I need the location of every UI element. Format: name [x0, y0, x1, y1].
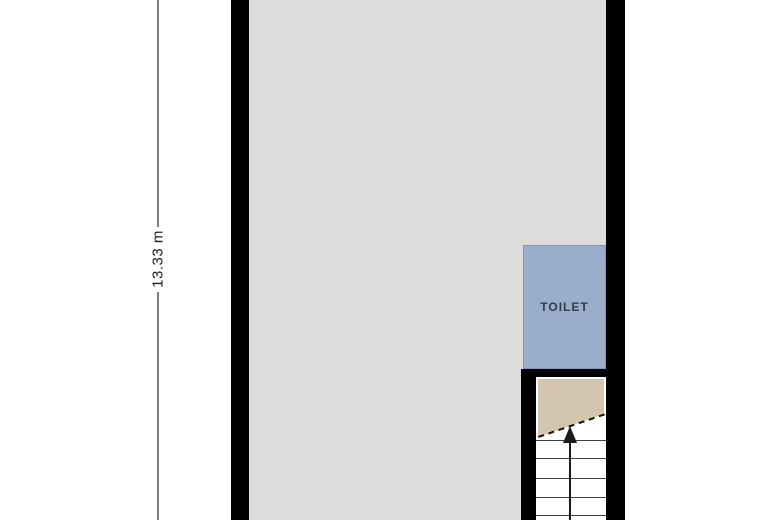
wall-stairs-left [521, 369, 536, 520]
dimension-line-upper [157, 0, 159, 227]
toilet-room: TOILET [523, 245, 606, 369]
wall-right [606, 0, 625, 520]
stair-tread-line [536, 497, 606, 498]
floorplan-canvas: 13.33 m TOILET [0, 0, 780, 520]
dimension-line-lower [157, 292, 159, 520]
stair-direction-line [569, 442, 571, 520]
staircase [536, 377, 606, 520]
stair-tread-line [536, 478, 606, 479]
dimension-label: 13.33 m [150, 230, 167, 288]
wall-left [231, 0, 249, 520]
stair-tread-line [536, 515, 606, 516]
stair-tread-line [536, 458, 606, 459]
toilet-room-label: TOILET [540, 300, 588, 314]
